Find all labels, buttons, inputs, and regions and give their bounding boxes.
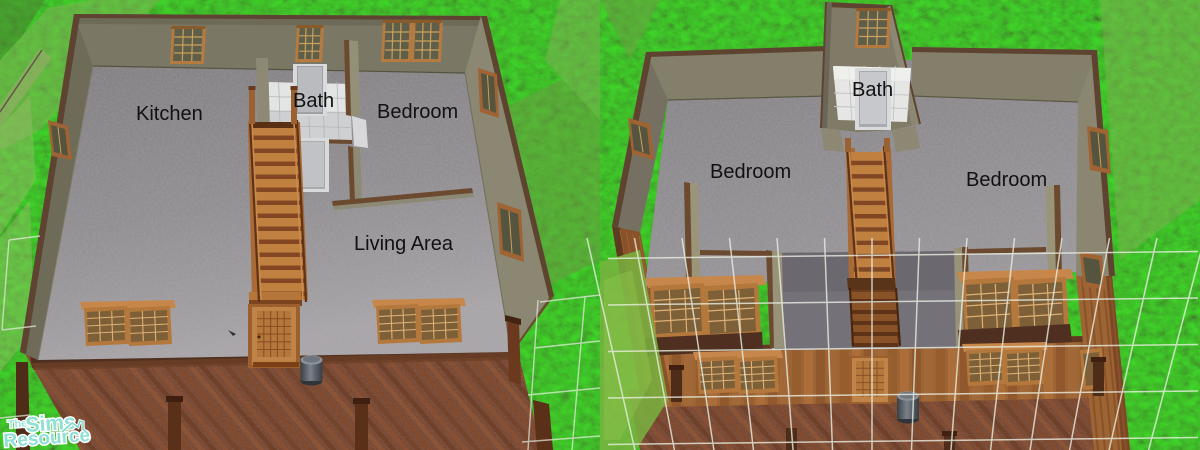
svg-text:Bath: Bath	[293, 90, 334, 112]
svg-text:Bedroom: Bedroom	[966, 169, 1047, 191]
svg-text:Kitchen: Kitchen	[136, 103, 203, 125]
svg-text:Bedroom: Bedroom	[710, 161, 791, 183]
svg-text:Living Area: Living Area	[354, 233, 454, 255]
svg-text:Bath: Bath	[852, 79, 893, 101]
svg-text:Bedroom: Bedroom	[377, 101, 458, 123]
